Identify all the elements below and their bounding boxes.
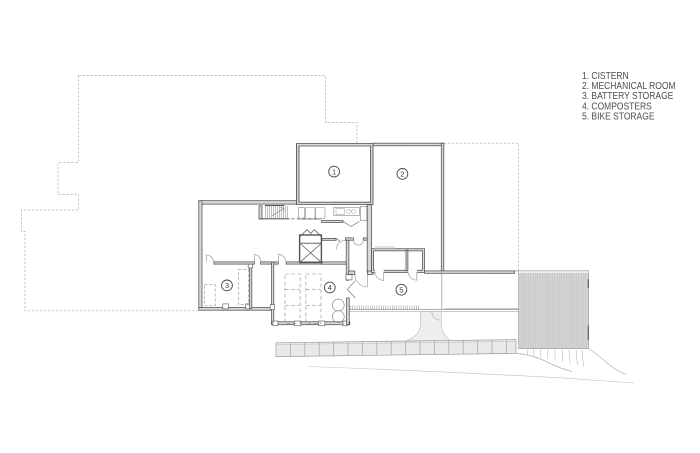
svg-text:5: 5	[399, 285, 403, 294]
svg-text:2: 2	[400, 170, 404, 179]
svg-text:4: 4	[328, 283, 332, 292]
svg-text:2. MECHANICAL ROOM: 2. MECHANICAL ROOM	[582, 80, 676, 91]
svg-text:5. BIKE STORAGE: 5. BIKE STORAGE	[582, 111, 654, 122]
svg-text:1. CISTERN: 1. CISTERN	[582, 70, 629, 81]
svg-text:4. COMPOSTERS: 4. COMPOSTERS	[582, 101, 652, 112]
svg-text:3: 3	[225, 281, 229, 290]
svg-text:1: 1	[332, 167, 336, 176]
svg-text:3. BATTERY STORAGE: 3. BATTERY STORAGE	[582, 91, 673, 102]
